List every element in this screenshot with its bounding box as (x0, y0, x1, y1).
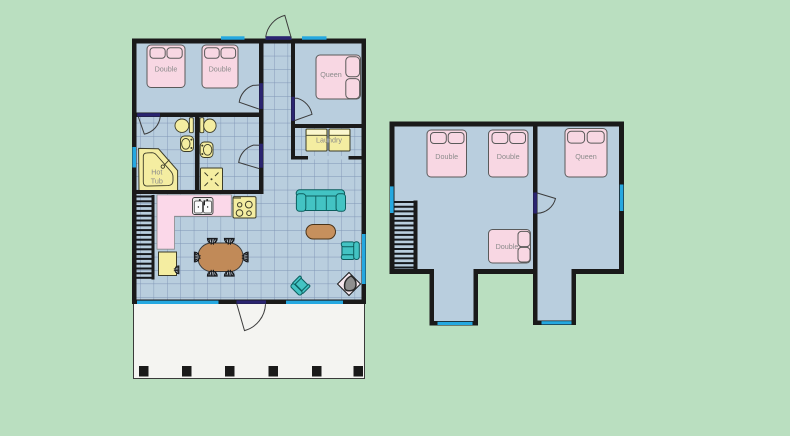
svg-text:Double: Double (496, 242, 519, 251)
svg-text:Double: Double (435, 152, 458, 161)
svg-text:Queen: Queen (575, 152, 597, 161)
svg-text:Queen: Queen (320, 70, 342, 79)
svg-text:Double: Double (209, 65, 232, 74)
svg-text:Tub: Tub (151, 177, 163, 186)
svg-text:Double: Double (155, 65, 178, 74)
svg-text:Hot: Hot (151, 168, 162, 177)
svg-text:Double: Double (497, 152, 520, 161)
svg-text:Laundry: Laundry (316, 136, 342, 145)
